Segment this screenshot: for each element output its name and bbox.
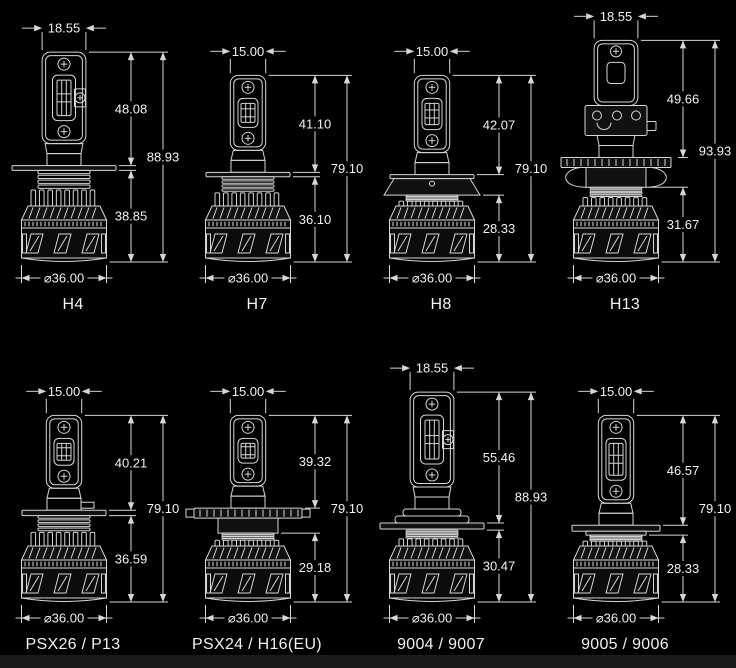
bulb-grid: 18.5548.0838.8588.93⌀36.00 H4 15.0041.10…: [0, 0, 736, 662]
dim-diameter-value: ⌀36.00: [596, 611, 636, 626]
dim-top-width-value: 18.55: [600, 9, 633, 24]
dim-diameter-value: ⌀36.00: [412, 611, 452, 626]
bulb-cell-9005-9006: 15.0046.5728.3379.10⌀36.00 9005 / 9006: [552, 340, 736, 662]
dim-diameter-value: ⌀36.00: [228, 271, 268, 286]
bulb-dimension-sheet: 18.5548.0838.8588.93⌀36.00 H4 15.0041.10…: [0, 0, 736, 668]
bulb-figure: [384, 75, 480, 261]
bulb-drawing-h4: 18.5548.0838.8588.93⌀36.00: [0, 0, 184, 290]
bulb-figure: [12, 52, 116, 261]
dim-top-width-value: 15.00: [416, 44, 449, 59]
dim-total-height-value: 93.93: [699, 144, 732, 159]
bulb-drawing-psx26-p13: 15.0040.2136.5979.10⌀36.00: [0, 340, 184, 630]
bulb-label-h4: H4: [0, 290, 146, 320]
dim-lower-height-value: 30.47: [483, 559, 516, 574]
bulb-figure: [206, 75, 291, 261]
bulb-cell-h7: 15.0041.1036.1079.10⌀36.00 H7: [184, 0, 368, 322]
bulb-cell-h4: 18.5548.0838.8588.93⌀36.00 H4: [0, 0, 184, 322]
dim-upper-height-value: 49.66: [667, 91, 700, 106]
dim-lower-height-value: 28.33: [667, 561, 700, 576]
bulb-label-h8: H8: [368, 290, 514, 320]
bulb-figure: [22, 415, 107, 601]
dim-diameter-value: ⌀36.00: [412, 271, 452, 286]
dim-upper-height-value: 40.21: [115, 455, 148, 470]
bulb-figure: [572, 415, 660, 601]
dim-upper-height-value: 48.08: [115, 101, 148, 116]
dim-upper-height-value: 55.46: [483, 450, 516, 465]
bulb-cell-h8: 15.0042.0728.3379.10⌀36.00 H8: [368, 0, 552, 322]
dim-diameter-value: ⌀36.00: [44, 611, 84, 626]
dim-top-width-value: 15.00: [48, 384, 81, 399]
bulb-figure: [186, 415, 310, 601]
bulb-label-h7: H7: [184, 290, 330, 320]
dim-lower-height-value: 28.33: [483, 221, 516, 236]
dim-lower-height-value: 36.10: [299, 212, 332, 227]
dim-upper-height-value: 46.57: [667, 463, 700, 478]
dim-total-height-value: 79.10: [699, 501, 732, 516]
bulb-drawing-h7: 15.0041.1036.1079.10⌀36.00: [184, 0, 368, 290]
dim-lower-height-value: 38.85: [115, 209, 148, 224]
dim-diameter-value: ⌀36.00: [44, 271, 84, 286]
dim-top-width-value: 18.55: [48, 21, 81, 36]
dim-top-width-value: 15.00: [232, 384, 265, 399]
bulb-drawing-9005-9006: 15.0046.5728.3379.10⌀36.00: [552, 340, 736, 630]
dim-top-width-value: 15.00: [600, 384, 633, 399]
dim-top-width-value: 15.00: [232, 44, 265, 59]
dim-diameter-value: ⌀36.00: [228, 611, 268, 626]
dim-total-height-value: 79.10: [331, 161, 364, 176]
dim-total-height-value: 79.10: [331, 501, 364, 516]
dim-total-height-value: 79.10: [147, 501, 180, 516]
dim-total-height-value: 88.93: [147, 150, 180, 165]
bulb-cell-psx24-h16: 15.0039.3229.1879.10⌀36.00 PSX24 / H16(E…: [184, 340, 368, 662]
dim-lower-height-value: 29.18: [299, 560, 332, 575]
dim-diameter-value: ⌀36.00: [596, 271, 636, 286]
bulb-cell-psx26-p13: 15.0040.2136.5979.10⌀36.00 PSX26 / P13: [0, 340, 184, 662]
footer-bar: [0, 655, 736, 668]
dim-total-height-value: 88.93: [515, 490, 548, 505]
dim-top-width-value: 18.55: [416, 361, 449, 376]
bulb-figure: [380, 392, 484, 601]
dim-lower-height-value: 36.59: [115, 551, 148, 566]
bulb-cell-9004-9007: 18.5555.4630.4788.93⌀36.00 9004 / 9007: [368, 340, 552, 662]
dim-upper-height-value: 42.07: [483, 117, 516, 132]
bulb-drawing-h8: 15.0042.0728.3379.10⌀36.00: [368, 0, 552, 290]
bulb-drawing-9004-9007: 18.5555.4630.4788.93⌀36.00: [368, 340, 552, 630]
bulb-drawing-h13: 18.5549.6631.6793.93⌀36.00: [552, 0, 736, 290]
bulb-cell-h13: 18.5549.6631.6793.93⌀36.00 H13: [552, 0, 736, 322]
dim-lower-height-value: 31.67: [667, 217, 700, 232]
dim-upper-height-value: 41.10: [299, 116, 332, 131]
dim-upper-height-value: 39.32: [299, 454, 332, 469]
bulb-figure: [561, 40, 671, 261]
dim-total-height-value: 79.10: [515, 161, 548, 176]
bulb-drawing-psx24-h16: 15.0039.3229.1879.10⌀36.00: [184, 340, 368, 630]
bulb-label-h13: H13: [552, 290, 698, 320]
